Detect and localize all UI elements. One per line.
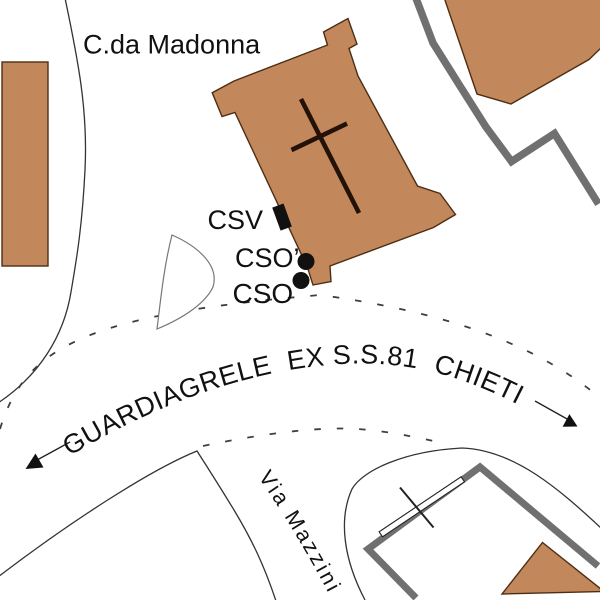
svg-text:CSO: CSO	[233, 278, 294, 309]
svg-text:CSV: CSV	[208, 205, 264, 235]
svg-text:CSO’: CSO’	[235, 243, 300, 273]
svg-text:C.da Madonna: C.da Madonna	[83, 30, 261, 60]
